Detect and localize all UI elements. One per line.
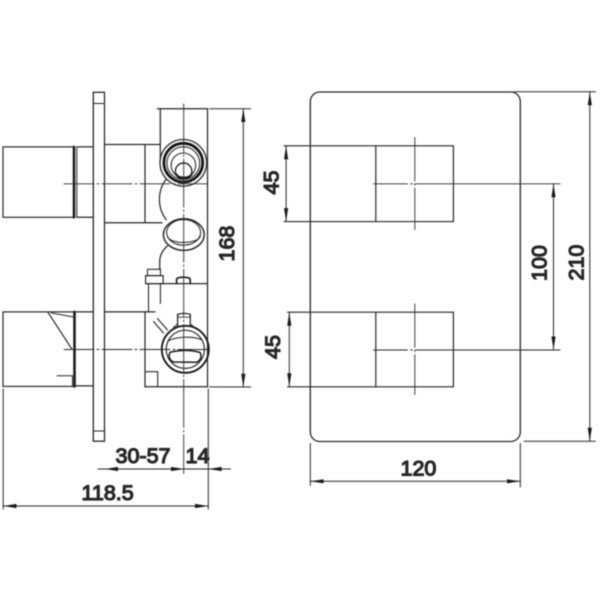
- svg-text:30-57: 30-57: [116, 444, 171, 468]
- svg-text:45: 45: [261, 335, 285, 359]
- svg-text:45: 45: [259, 171, 283, 195]
- svg-text:118.5: 118.5: [82, 481, 134, 505]
- svg-text:14: 14: [186, 444, 210, 468]
- svg-text:210: 210: [565, 245, 589, 281]
- svg-text:168: 168: [215, 226, 239, 262]
- svg-text:100: 100: [528, 245, 552, 281]
- svg-text:120: 120: [401, 457, 437, 481]
